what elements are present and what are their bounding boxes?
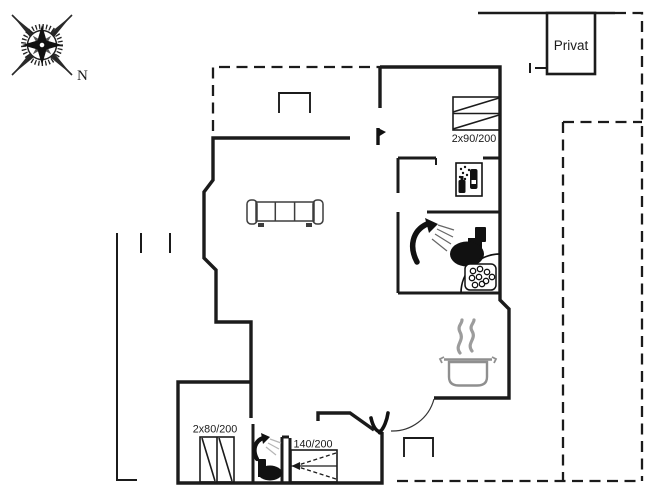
twin-bed-icon [200,437,234,482]
toilet-icon [450,227,486,267]
floor-plan-svg: N Privat [0,0,650,487]
floor-plan-page: N Privat [0,0,650,487]
entrance-door-swing-icon [391,399,434,431]
double-bed-icon [453,97,500,130]
shower-icon [413,218,454,262]
privat-label: Privat [554,38,589,53]
shower-icon-second [255,433,281,459]
terrace-step-marks [279,93,433,457]
compass-rose-icon [12,15,72,75]
terrace-outline [117,233,170,480]
entrance-door-leaf-icon [371,413,388,435]
sofa-bed-icon [291,450,337,482]
toilet-icon-second [258,459,282,481]
north-label: N [77,68,88,84]
plot-boundary-dashed [213,13,642,481]
bed-label-2x90: 2x90/200 [452,133,496,145]
cooking-pot-icon [440,320,496,386]
bed-label-140: 140/200 [293,439,332,451]
washing-machine-icon [456,163,482,196]
living-room-door-leaf-icon [378,128,386,145]
bed-label-2x80: 2x80/200 [193,424,237,436]
sofa-icon [247,200,323,227]
privat-annex: Privat [547,13,595,74]
